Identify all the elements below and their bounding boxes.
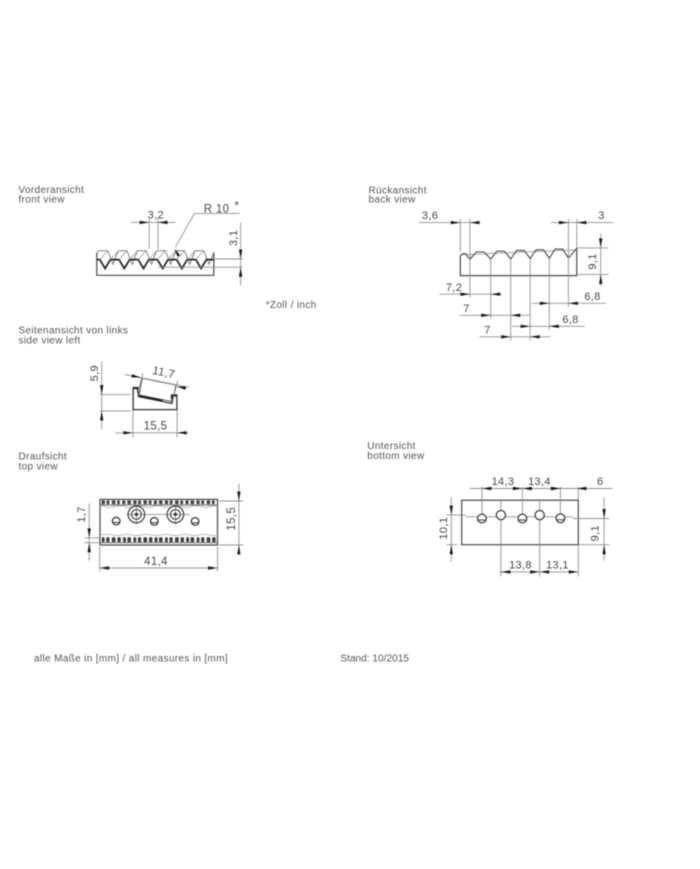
svg-text:14,3: 14,3 xyxy=(492,476,515,488)
svg-text:15,5: 15,5 xyxy=(144,421,168,433)
svg-text:alle Maße in [mm] / all measur: alle Maße in [mm] / all measures in [mm] xyxy=(34,654,228,665)
svg-text:3,6: 3,6 xyxy=(422,210,438,222)
svg-text:side view left: side view left xyxy=(19,336,81,347)
svg-text:*: * xyxy=(235,201,240,213)
svg-text:7: 7 xyxy=(484,325,490,337)
svg-text:top view: top view xyxy=(19,462,59,473)
svg-text:13,8: 13,8 xyxy=(509,560,532,572)
svg-text:13,1: 13,1 xyxy=(546,560,569,572)
svg-text:Stand: 10/2015: Stand: 10/2015 xyxy=(340,654,409,665)
svg-text:back view: back view xyxy=(369,195,416,206)
svg-text:3: 3 xyxy=(598,210,604,222)
svg-text:9,1: 9,1 xyxy=(590,525,602,541)
svg-text:5,9: 5,9 xyxy=(89,365,101,381)
svg-text:bottom view: bottom view xyxy=(367,451,425,462)
svg-text:10,1: 10,1 xyxy=(438,517,450,540)
svg-text:*Zoll / inch: *Zoll / inch xyxy=(266,300,317,311)
svg-text:front view: front view xyxy=(19,194,66,205)
svg-text:6: 6 xyxy=(597,476,603,488)
svg-text:6,8: 6,8 xyxy=(584,291,600,303)
svg-text:1,7: 1,7 xyxy=(76,506,88,522)
svg-text:11,7: 11,7 xyxy=(151,365,176,381)
svg-text:13,4: 13,4 xyxy=(528,476,551,488)
svg-text:3,2: 3,2 xyxy=(148,210,164,222)
svg-text:7,2: 7,2 xyxy=(446,282,462,294)
svg-text:41,4: 41,4 xyxy=(144,556,168,568)
svg-text:9,1: 9,1 xyxy=(587,253,599,269)
svg-text:3,1: 3,1 xyxy=(228,230,240,246)
svg-text:15,5: 15,5 xyxy=(226,507,238,531)
svg-text:7: 7 xyxy=(463,303,469,315)
svg-text:6,8: 6,8 xyxy=(562,314,578,326)
